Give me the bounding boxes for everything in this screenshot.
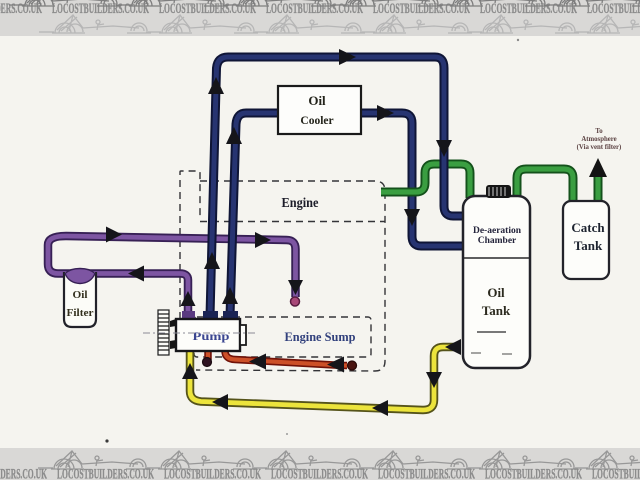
svg-text:Tank: Tank bbox=[482, 303, 511, 318]
svg-text:Oil: Oil bbox=[73, 289, 88, 301]
svg-text:LOCOSTBUILDERS.CO.UK: LOCOSTBUILDERS.CO.UK bbox=[378, 467, 475, 480]
svg-text:(Via vent filter): (Via vent filter) bbox=[577, 144, 622, 151]
svg-text:LOCOSTBUILDERS.CO.UK: LOCOSTBUILDERS.CO.UK bbox=[0, 1, 42, 17]
svg-text:Engine Sump: Engine Sump bbox=[285, 329, 356, 344]
svg-text:Pump: Pump bbox=[193, 329, 230, 343]
svg-text:Filter: Filter bbox=[67, 307, 94, 319]
svg-text:Cooler: Cooler bbox=[300, 115, 333, 127]
svg-text:LOCOSTBUILDERS.CO.UK: LOCOSTBUILDERS.CO.UK bbox=[592, 467, 640, 480]
svg-text:LOCOSTBUILDERS.CO.UK: LOCOSTBUILDERS.CO.UK bbox=[271, 467, 368, 480]
svg-text:LOCOSTBUILDERS.CO.UK: LOCOSTBUILDERS.CO.UK bbox=[164, 467, 261, 480]
svg-text:LOCOSTBUILDERS.CO.UK: LOCOSTBUILDERS.CO.UK bbox=[0, 467, 47, 480]
svg-text:Catch: Catch bbox=[571, 220, 605, 235]
svg-text:Chamber: Chamber bbox=[478, 236, 517, 246]
svg-text:To: To bbox=[595, 128, 603, 135]
svg-text:LOCOSTBUILDERS.CO.UK: LOCOSTBUILDERS.CO.UK bbox=[57, 467, 154, 480]
svg-text:Oil: Oil bbox=[487, 285, 505, 300]
svg-text:LOCOSTBUILDERS.CO.UK: LOCOSTBUILDERS.CO.UK bbox=[587, 1, 640, 17]
svg-text:Oil: Oil bbox=[308, 93, 326, 108]
svg-text:Atmosphere: Atmosphere bbox=[581, 136, 616, 143]
svg-text:De-aeration: De-aeration bbox=[473, 226, 522, 236]
svg-text:Tank: Tank bbox=[574, 238, 603, 253]
svg-text:LOCOSTBUILDERS.CO.UK: LOCOSTBUILDERS.CO.UK bbox=[485, 467, 582, 480]
svg-text:Engine: Engine bbox=[282, 195, 319, 210]
